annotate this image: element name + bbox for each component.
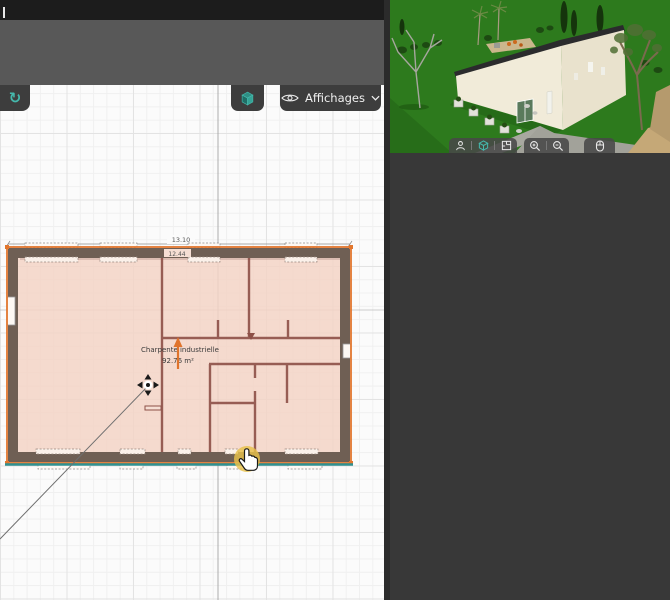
zoom-group [524,138,569,153]
mouse-icon [595,140,605,152]
affichages-label: Affichages [305,91,365,105]
view-3d-mode-button[interactable] [472,138,494,153]
zoom-in-button[interactable] [524,138,546,153]
side-panel [390,153,670,600]
zoom-in-icon [529,140,541,152]
secondary-toolbar [0,20,386,85]
house-window-small-1 [588,62,593,72]
mouse-controls-button[interactable] [584,138,615,153]
window-marker-right-wall [343,344,351,358]
text-caret [3,7,5,18]
zoom-out-icon [552,140,564,152]
snap-button[interactable]: ↻ [0,85,30,111]
dimension-inner-label: 12.44 [168,251,185,258]
zoom-out-button[interactable] [547,138,569,153]
title-bar [0,0,386,20]
window-marker-left-wall [7,297,15,325]
room-type-label: Charpente industrielle [141,346,219,354]
rotate-icon: ↻ [9,91,22,106]
mouse-group [584,138,615,153]
house-window-small-3 [574,73,578,80]
viewer-mode-group [449,138,517,153]
cube-icon [240,91,255,106]
viewport-3d[interactable] [390,0,670,153]
floorplan-view-button[interactable] [495,138,517,153]
chevron-down-icon [371,95,380,101]
house-window-small-2 [601,67,605,75]
house-door [547,91,552,114]
radiator-marker [145,406,161,410]
scene-3d [390,0,670,153]
eye-icon [281,93,299,103]
hand-cursor [234,446,260,472]
house-3d-icon [478,140,489,151]
view-3d-button[interactable] [231,85,264,111]
affichages-dropdown[interactable]: Affichages [280,85,381,111]
floorplan-icon [501,140,512,151]
person-view-button[interactable] [449,138,471,153]
dimension-width-label: 13.10 [172,236,191,244]
person-icon [455,140,466,151]
